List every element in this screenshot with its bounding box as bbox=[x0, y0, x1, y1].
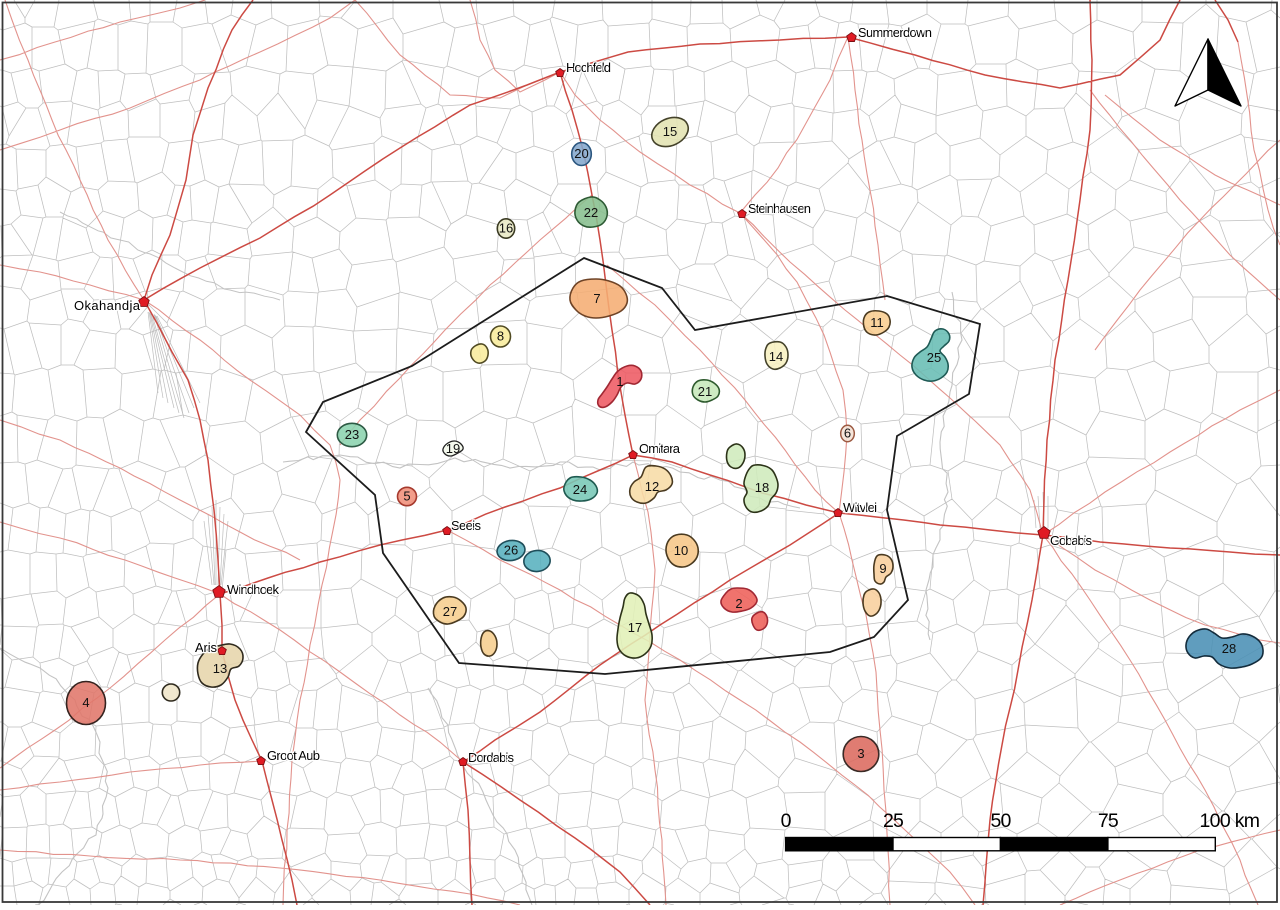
svg-text:Witvlei: Witvlei bbox=[843, 500, 877, 515]
svg-text:15: 15 bbox=[663, 124, 677, 139]
svg-text:75: 75 bbox=[1098, 810, 1119, 832]
svg-text:9: 9 bbox=[879, 561, 886, 576]
svg-text:Steinhausen: Steinhausen bbox=[748, 201, 811, 216]
svg-text:5: 5 bbox=[403, 489, 410, 504]
svg-text:50: 50 bbox=[990, 810, 1011, 832]
svg-text:4: 4 bbox=[82, 695, 89, 710]
svg-text:20: 20 bbox=[574, 146, 588, 161]
svg-text:6: 6 bbox=[844, 426, 851, 441]
svg-text:Hochfeld: Hochfeld bbox=[566, 60, 611, 75]
svg-text:24: 24 bbox=[573, 482, 587, 497]
svg-text:25: 25 bbox=[927, 350, 941, 365]
svg-text:7: 7 bbox=[593, 291, 600, 306]
svg-text:18: 18 bbox=[755, 480, 769, 495]
svg-text:23: 23 bbox=[345, 427, 359, 442]
svg-text:16: 16 bbox=[499, 221, 513, 236]
svg-text:0: 0 bbox=[781, 810, 792, 832]
svg-text:28: 28 bbox=[1222, 641, 1236, 656]
svg-text:19: 19 bbox=[446, 441, 460, 456]
svg-text:1: 1 bbox=[616, 374, 623, 389]
svg-text:100 km: 100 km bbox=[1200, 810, 1260, 832]
svg-text:10: 10 bbox=[674, 543, 688, 558]
svg-text:27: 27 bbox=[443, 604, 457, 619]
svg-text:26: 26 bbox=[504, 543, 518, 558]
svg-text:3: 3 bbox=[857, 746, 864, 761]
svg-text:2: 2 bbox=[735, 596, 742, 611]
svg-text:17: 17 bbox=[628, 620, 642, 635]
svg-text:Groot Aub: Groot Aub bbox=[267, 748, 320, 763]
svg-text:22: 22 bbox=[584, 205, 598, 220]
svg-text:Windhoek: Windhoek bbox=[227, 582, 280, 597]
svg-text:Dordabis: Dordabis bbox=[468, 750, 515, 765]
svg-text:21: 21 bbox=[698, 384, 712, 399]
svg-text:8: 8 bbox=[497, 329, 504, 344]
svg-text:13: 13 bbox=[213, 661, 227, 676]
svg-text:11: 11 bbox=[870, 315, 884, 330]
svg-text:25: 25 bbox=[883, 810, 904, 832]
svg-text:Summerdown: Summerdown bbox=[858, 25, 932, 40]
svg-text:Seeis: Seeis bbox=[451, 518, 482, 533]
svg-text:Okahandja: Okahandja bbox=[74, 298, 141, 313]
svg-text:14: 14 bbox=[769, 349, 783, 364]
svg-text:Gobabis: Gobabis bbox=[1050, 533, 1093, 548]
svg-text:Omitara: Omitara bbox=[639, 441, 681, 456]
svg-text:Aris: Aris bbox=[195, 640, 218, 655]
svg-text:12: 12 bbox=[645, 479, 659, 494]
